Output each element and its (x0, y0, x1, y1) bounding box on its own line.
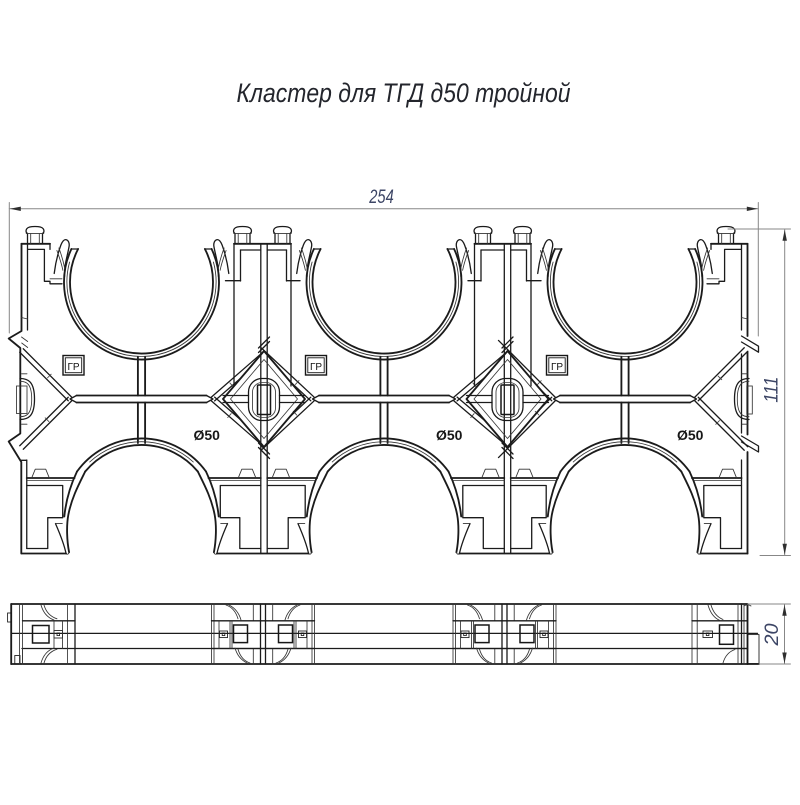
svg-text:ГР: ГР (310, 362, 322, 373)
svg-text:Кластер для ТГД д50 тройной: Кластер для ТГД д50 тройной (237, 78, 571, 108)
svg-text:111: 111 (762, 377, 783, 403)
svg-text:ГР: ГР (67, 362, 79, 373)
svg-text:254: 254 (368, 187, 393, 208)
svg-text:Ø50: Ø50 (194, 427, 221, 443)
svg-text:20: 20 (762, 623, 783, 646)
svg-text:Ø50: Ø50 (677, 427, 704, 443)
svg-text:ГР: ГР (551, 362, 563, 373)
svg-text:Ø50: Ø50 (436, 427, 463, 443)
